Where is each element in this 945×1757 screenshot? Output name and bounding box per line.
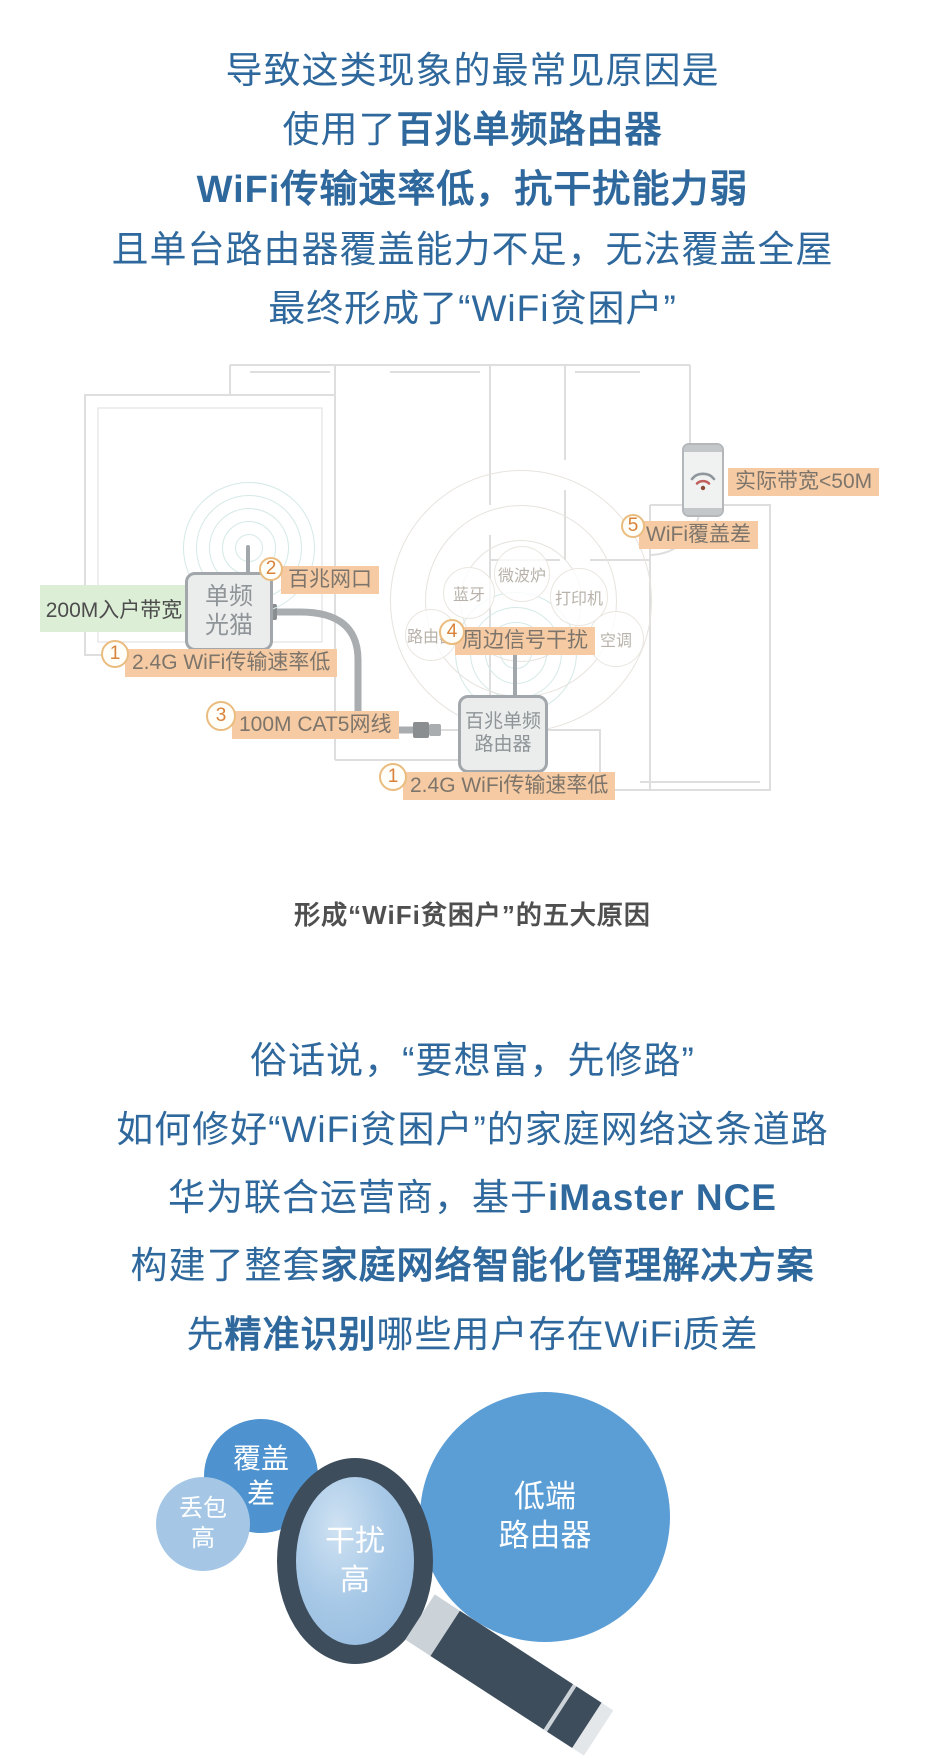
diagram-caption: 形成“WiFi贫困户”的五大原因 xyxy=(0,895,945,932)
modem-label-line1: 单频 xyxy=(205,583,253,612)
article-page: 导致这类现象的最常见原因是 使用了百兆单频路由器 WiFi传输速率低，抗干扰能力… xyxy=(0,0,945,1757)
phone-bandwidth-label: 实际带宽<50M xyxy=(728,468,879,496)
intro-line-4: 且单台路由器覆盖能力不足，无法覆盖全屋 xyxy=(0,219,945,273)
badge-label-4: 周边信号干扰 xyxy=(455,627,595,655)
bubble-lowend-router-line1: 低端 xyxy=(514,1478,576,1517)
bubble-coverage-line1: 覆盖 xyxy=(233,1441,289,1476)
badge-label-1b: 2.4G WiFi传输速率低 xyxy=(403,772,615,800)
interference-bubble-aircon: 空调 xyxy=(588,611,644,667)
intro-line-2-pre: 使用了 xyxy=(283,109,397,150)
badge-label-2: 百兆网口 xyxy=(281,566,379,594)
bubble-coverage-line2: 差 xyxy=(247,1476,275,1511)
badge-number-1b: 1 xyxy=(379,763,407,791)
badge-number-4: 4 xyxy=(439,619,465,645)
intro-line-2-bold: 百兆单频路由器 xyxy=(397,109,663,150)
router-antenna xyxy=(513,650,517,697)
solution-line-3: 华为联合运营商，基于iMaster NCE xyxy=(0,1167,945,1221)
phone-screen xyxy=(684,452,722,508)
modem-antenna xyxy=(246,545,250,574)
badge-label-5: WiFi覆盖差 xyxy=(639,521,758,549)
router-label-line2: 路由器 xyxy=(474,734,531,757)
modem-label-line2: 光猫 xyxy=(205,612,253,641)
badge-label-1: 2.4G WiFi传输速率低 xyxy=(125,649,337,677)
router-device: 百兆单频 路由器 xyxy=(458,695,548,773)
bandwidth-label: 200M入户带宽 xyxy=(40,585,188,632)
cable-plug-router-tip xyxy=(429,724,441,736)
bubble-lowend-router: 低端 路由器 xyxy=(420,1392,670,1642)
smartphone xyxy=(682,443,724,517)
intro-line-5: 最终形成了“WiFi贫困户” xyxy=(0,278,945,332)
badge-number-3: 3 xyxy=(206,701,236,731)
bubble-packet-loss: 丢包 高 xyxy=(156,1477,250,1571)
cable-plug-router xyxy=(413,722,429,738)
solution-line-5: 先精准识别哪些用户存在WiFi质差 xyxy=(0,1304,945,1358)
badge-number-2: 2 xyxy=(259,557,283,581)
phone-top-cap xyxy=(684,445,722,452)
badge-number-5: 5 xyxy=(621,514,645,538)
bubble-packet-loss-line1: 丢包 xyxy=(179,1494,227,1524)
phone-bottom-cap xyxy=(684,508,722,515)
bubble-interference-line2: 高 xyxy=(340,1561,370,1600)
solution-line-1: 俗话说，“要想富，先修路” xyxy=(0,1030,945,1084)
solution-line-2: 如何修好“WiFi贫困户”的家庭网络这条道路 xyxy=(0,1099,945,1153)
modem-device: 单频 光猫 xyxy=(185,572,273,651)
solution-line-4: 构建了整套家庭网络智能化管理解决方案 xyxy=(0,1235,945,1289)
badge-label-3: 100M CAT5网线 xyxy=(232,711,399,739)
bubble-lowend-router-line2: 路由器 xyxy=(499,1517,592,1556)
bubble-packet-loss-line2: 高 xyxy=(191,1524,215,1554)
intro-line-1: 导致这类现象的最常见原因是 xyxy=(0,40,945,94)
badge-number-1: 1 xyxy=(101,640,129,668)
interference-bubble-bluetooth: 蓝牙 xyxy=(443,567,495,619)
intro-line-2: 使用了百兆单频路由器 xyxy=(0,99,945,153)
router-label-line1: 百兆单频 xyxy=(465,711,541,734)
intro-line-3: WiFi传输速率低，抗干扰能力弱 xyxy=(0,158,945,213)
bubble-interference-line1: 干扰 xyxy=(325,1522,385,1561)
wifi-weak-icon xyxy=(688,468,718,492)
interference-bubble-microwave: 微波炉 xyxy=(494,546,550,602)
